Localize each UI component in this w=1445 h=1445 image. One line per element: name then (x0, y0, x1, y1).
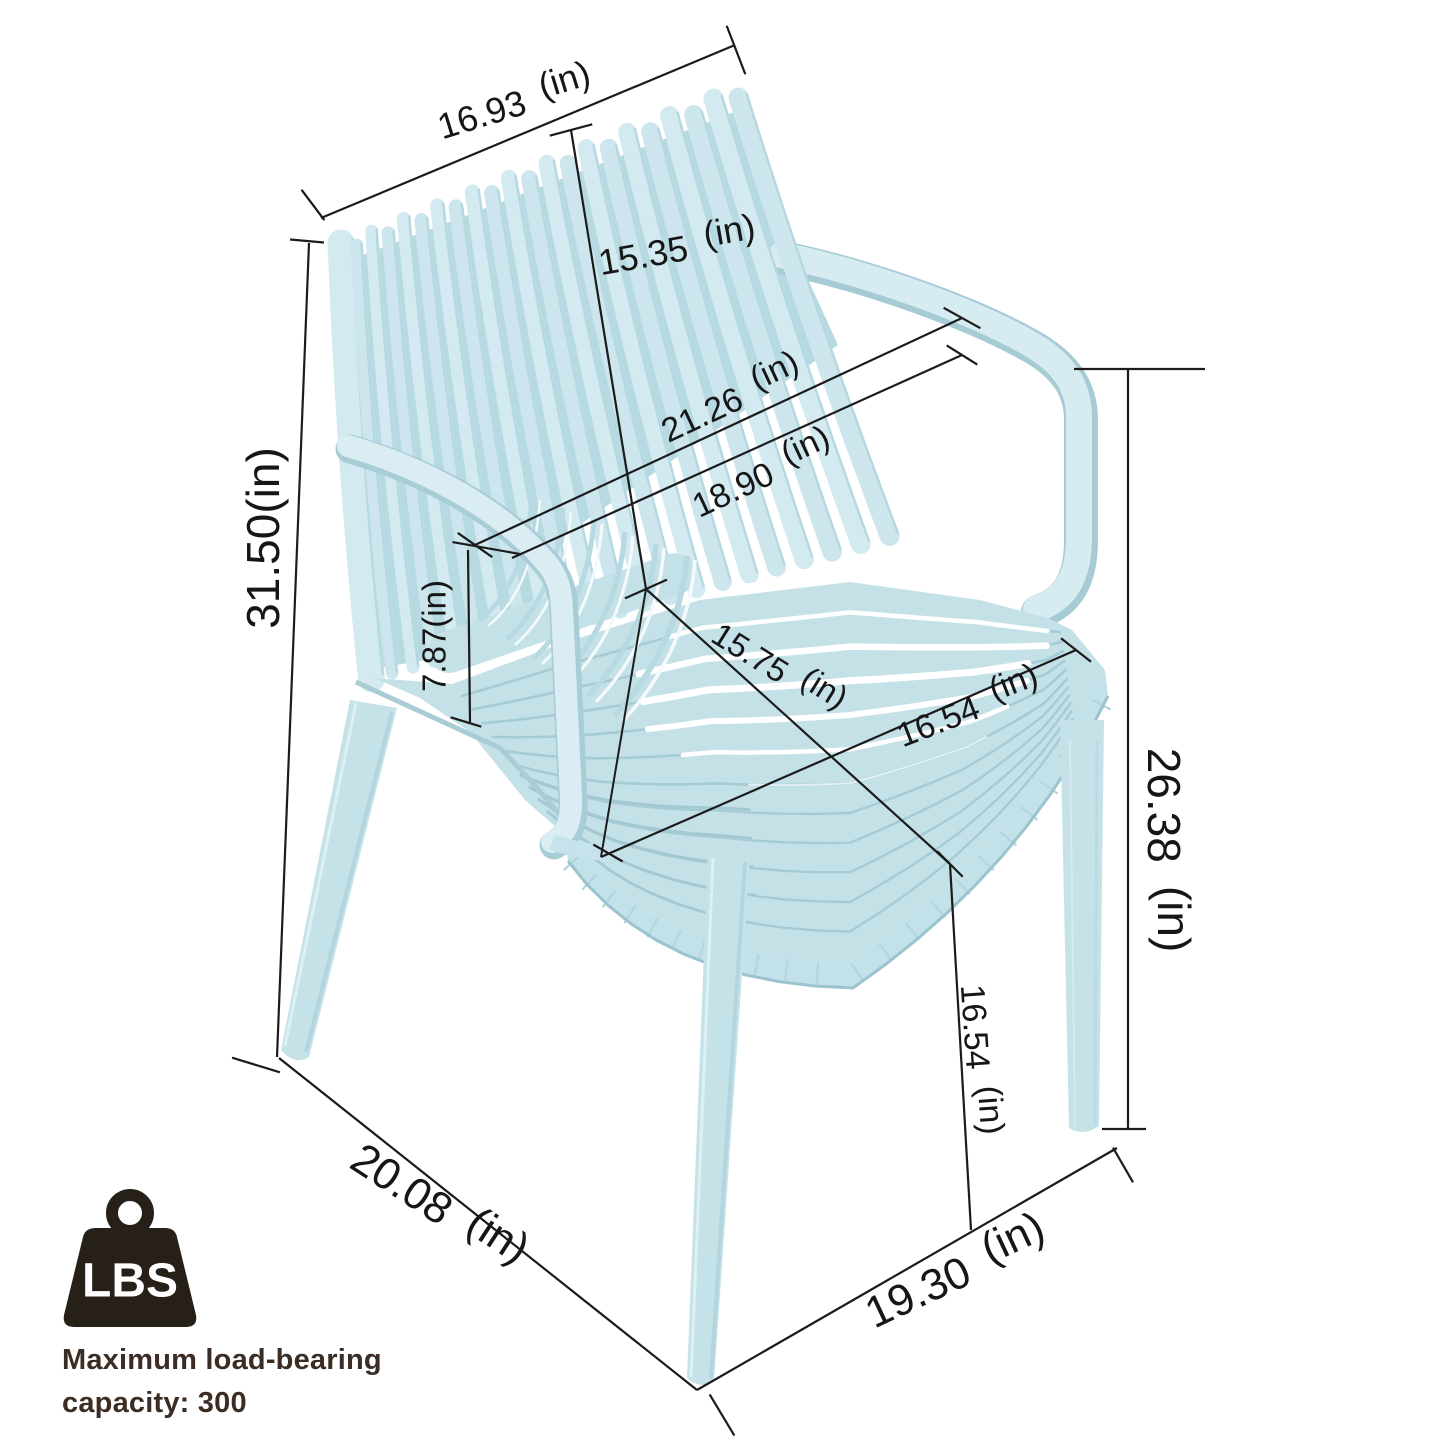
svg-text:Maximum load-bearing: Maximum load-bearing (62, 1344, 382, 1376)
svg-text:31.50(in): 31.50(in) (237, 447, 289, 629)
svg-text:capacity: 300: capacity: 300 (62, 1387, 247, 1419)
svg-text:LBS: LBS (82, 1255, 178, 1308)
svg-text:7.87(in): 7.87(in) (416, 580, 453, 692)
